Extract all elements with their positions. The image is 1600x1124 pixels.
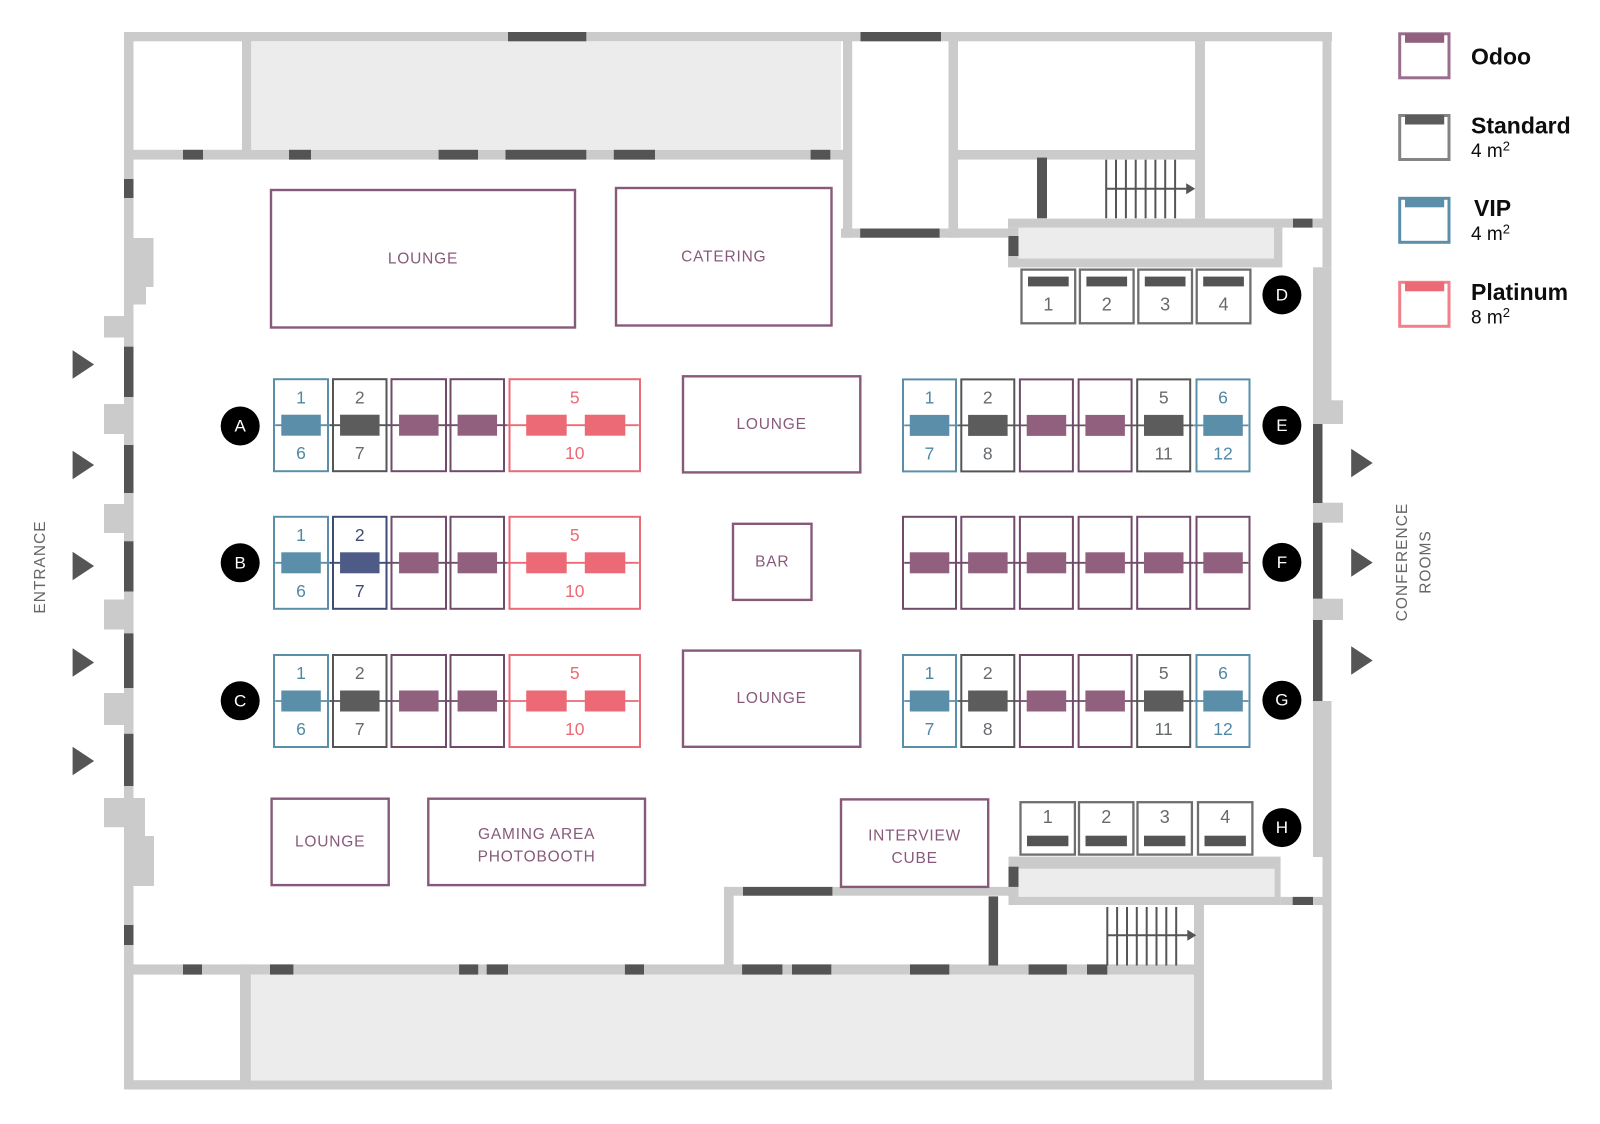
svg-text:2: 2 — [355, 387, 365, 407]
svg-text:C: C — [234, 691, 246, 710]
svg-text:10: 10 — [565, 719, 585, 739]
svg-text:2: 2 — [1102, 295, 1112, 315]
svg-text:PHOTOBOOTH: PHOTOBOOTH — [478, 849, 596, 866]
svg-text:ENTRANCE: ENTRANCE — [32, 520, 49, 613]
svg-text:6: 6 — [296, 443, 306, 463]
svg-text:VIP: VIP — [1474, 195, 1511, 221]
svg-text:7: 7 — [355, 581, 365, 601]
svg-text:2: 2 — [355, 663, 365, 683]
svg-text:E: E — [1276, 416, 1287, 435]
svg-text:BAR: BAR — [755, 553, 789, 570]
svg-text:3: 3 — [1160, 295, 1170, 315]
svg-text:G: G — [1275, 691, 1288, 710]
svg-text:CUBE: CUBE — [891, 850, 937, 867]
svg-text:1: 1 — [296, 663, 306, 683]
svg-text:7: 7 — [925, 443, 935, 463]
svg-text:7: 7 — [355, 719, 365, 739]
svg-text:8: 8 — [983, 443, 993, 463]
svg-text:5: 5 — [570, 525, 580, 545]
svg-text:3: 3 — [1160, 807, 1170, 827]
svg-text:7: 7 — [355, 443, 365, 463]
svg-text:Platinum: Platinum — [1471, 279, 1568, 305]
svg-text:5: 5 — [1159, 388, 1169, 408]
svg-text:12: 12 — [1213, 443, 1232, 463]
svg-text:10: 10 — [565, 581, 585, 601]
svg-text:Odoo: Odoo — [1471, 44, 1531, 70]
svg-text:2: 2 — [983, 388, 993, 408]
svg-text:1: 1 — [925, 388, 935, 408]
svg-text:6: 6 — [296, 719, 306, 739]
svg-text:2: 2 — [1101, 807, 1111, 827]
svg-text:12: 12 — [1213, 719, 1232, 739]
svg-text:CONFERENCE: CONFERENCE — [1394, 503, 1411, 622]
svg-text:1: 1 — [296, 525, 306, 545]
svg-text:1: 1 — [1043, 807, 1053, 827]
svg-text:7: 7 — [925, 719, 935, 739]
svg-text:6: 6 — [1218, 388, 1228, 408]
svg-text:LOUNGE: LOUNGE — [737, 416, 807, 433]
svg-text:6: 6 — [296, 581, 306, 601]
svg-text:4 m2: 4 m2 — [1471, 138, 1510, 162]
svg-text:5: 5 — [570, 663, 580, 683]
svg-text:4: 4 — [1220, 807, 1230, 827]
svg-text:5: 5 — [570, 387, 580, 407]
svg-text:ROOMS: ROOMS — [1417, 530, 1434, 594]
svg-text:GAMING AREA: GAMING AREA — [478, 826, 595, 843]
svg-text:B: B — [235, 553, 246, 572]
svg-text:Standard: Standard — [1471, 113, 1571, 139]
svg-text:2: 2 — [983, 663, 993, 683]
svg-text:INTERVIEW: INTERVIEW — [868, 827, 961, 844]
svg-text:H: H — [1276, 818, 1288, 837]
svg-text:8 m2: 8 m2 — [1471, 304, 1510, 328]
svg-text:LOUNGE: LOUNGE — [737, 690, 807, 707]
svg-text:1: 1 — [925, 663, 935, 683]
svg-text:D: D — [1276, 285, 1288, 304]
svg-text:CATERING: CATERING — [681, 248, 766, 265]
svg-text:5: 5 — [1159, 663, 1169, 683]
svg-text:1: 1 — [296, 387, 306, 407]
svg-text:6: 6 — [1218, 663, 1228, 683]
svg-text:LOUNGE: LOUNGE — [388, 250, 458, 267]
svg-text:1: 1 — [1043, 295, 1053, 315]
svg-text:11: 11 — [1155, 443, 1173, 463]
svg-text:4: 4 — [1219, 295, 1229, 315]
svg-text:4 m2: 4 m2 — [1471, 221, 1510, 245]
svg-text:11: 11 — [1155, 719, 1173, 739]
svg-text:LOUNGE: LOUNGE — [295, 833, 365, 850]
svg-text:8: 8 — [983, 719, 993, 739]
svg-text:10: 10 — [565, 443, 585, 463]
svg-text:2: 2 — [355, 525, 365, 545]
svg-text:A: A — [235, 417, 247, 436]
svg-text:F: F — [1277, 553, 1287, 572]
